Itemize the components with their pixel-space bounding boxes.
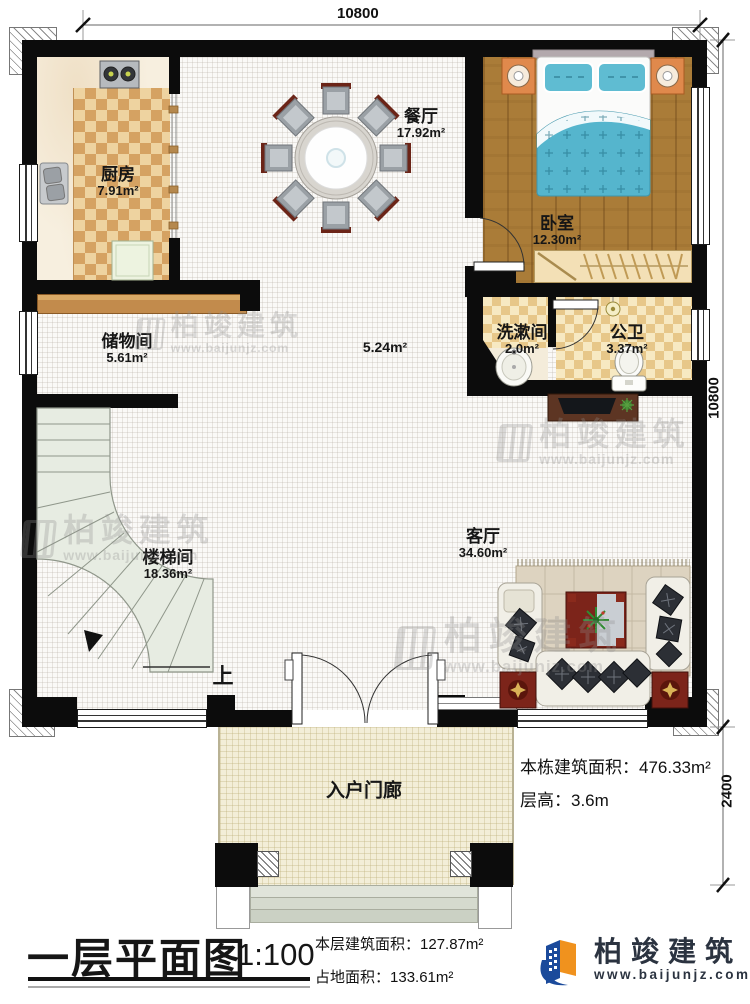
wall-kitchen-storage (22, 280, 260, 294)
porch-column-left (215, 843, 258, 887)
pillar-shelf-end (240, 280, 260, 311)
porch-base-right (478, 885, 512, 929)
room-label-washroom: 洗漱间 2.0m² (497, 323, 548, 357)
floor-plan-sheet: 10800 10800 2400 厨房 7.91m² 餐厅 17.92m² 卧室… (0, 0, 750, 1004)
wall-top (22, 40, 707, 57)
wardrobe (534, 250, 692, 283)
porch-column-hatch-right (450, 851, 472, 877)
window-toilet (691, 309, 710, 361)
room-label-storage: 储物间 5.61m² (102, 332, 153, 366)
building-area-line: 本栋建筑面积：476.33m² (520, 753, 711, 778)
room-label-toilet: 公卫 3.37m² (606, 323, 647, 357)
dim-right-upper: 10800 (706, 377, 723, 419)
brand-logo: 柏竣建筑 www.baijunjz.com (534, 934, 750, 988)
wall-storage-stairs (22, 394, 178, 408)
porch-base-left (216, 885, 250, 929)
wall-kitchen-divider-upper (169, 57, 180, 94)
hall-area-label: 5.24m² (363, 339, 407, 355)
plan-scale: 1:100 (237, 937, 315, 973)
storage-shelf (37, 294, 247, 314)
brand-name: 柏竣建筑 (594, 938, 750, 966)
dim-right-lower: 2400 (719, 774, 736, 807)
window-sill (437, 697, 517, 710)
room-label-dining: 餐厅 17.92m² (397, 107, 445, 141)
window-bedroom (691, 87, 710, 245)
wall-bath-bottom (467, 380, 707, 396)
title-underline (28, 977, 310, 981)
brand-website: www.baijunjz.com (594, 966, 750, 985)
window-storage (19, 311, 38, 375)
porch-column-right (470, 843, 513, 887)
room-label-porch: 入户门廊 (326, 780, 402, 801)
pillar-bottom-mid-left (207, 695, 235, 727)
room-label-living: 客厅 34.60m² (459, 527, 507, 561)
pillar-bottom-right (645, 697, 707, 712)
wall-dining-bedroom (465, 57, 483, 218)
room-label-kitchen: 厨房 7.91m² (97, 165, 138, 199)
wall-left (22, 40, 37, 727)
window-kitchen (19, 164, 38, 242)
wall-bath-divider (548, 297, 556, 347)
pillar-bottom-left (22, 697, 77, 712)
floor-height-line: 层高：3.6m (520, 786, 609, 811)
window-living (517, 709, 648, 728)
wall-bedroom-bottom (465, 283, 707, 297)
porch-column-hatch-left (257, 851, 279, 877)
land-area-line: 占地面积：133.61m² (315, 966, 453, 987)
window-stairwell (77, 709, 207, 728)
dim-top: 10800 (337, 5, 379, 22)
entry-door-opening (292, 710, 437, 727)
room-label-stairwell: 楼梯间 18.36m² (143, 548, 194, 582)
title-underline-thin (28, 986, 310, 988)
floor-area-line: 本层建筑面积：127.87m² (315, 933, 483, 954)
stairs-up-label: 上 (213, 660, 234, 690)
brand-logo-icon (534, 934, 586, 988)
porch-step-3 (250, 909, 478, 923)
room-label-bedroom: 卧室 12.30m² (533, 214, 581, 248)
